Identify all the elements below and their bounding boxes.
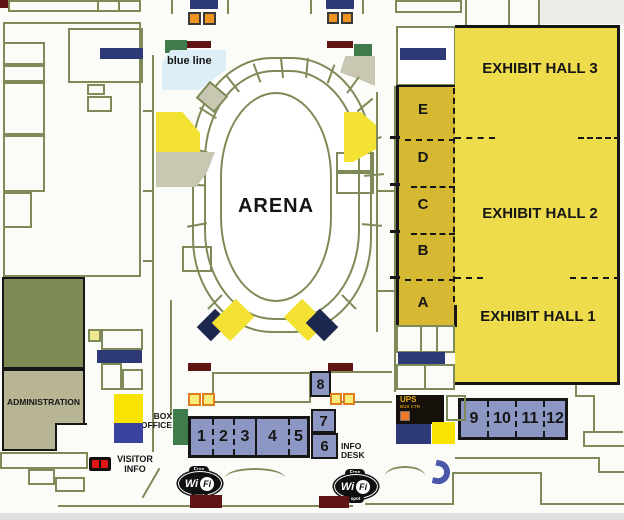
box-office-label: BOX OFFICE bbox=[140, 412, 172, 430]
promenade-wall bbox=[540, 503, 624, 505]
small-room bbox=[446, 395, 466, 421]
section-tick bbox=[390, 183, 400, 186]
arena-floor-oval: ARENA bbox=[220, 92, 332, 302]
ups-business-center: UPS BUS CTR bbox=[396, 395, 444, 424]
orange-block bbox=[203, 12, 216, 25]
wall-outline bbox=[8, 0, 141, 12]
blue-line-label: blue line bbox=[167, 56, 223, 68]
room-1: 1 bbox=[191, 419, 212, 455]
room-7-label: 7 bbox=[319, 413, 327, 430]
administration-upper-block bbox=[2, 277, 85, 369]
pale-yellow-block bbox=[88, 329, 101, 342]
navy-block bbox=[190, 0, 218, 9]
promenade-room bbox=[55, 477, 85, 492]
wifi-fi-label: Fi bbox=[199, 476, 215, 492]
yellow-square bbox=[202, 393, 215, 406]
promenade-room bbox=[0, 452, 88, 469]
yellow-block bbox=[114, 394, 143, 423]
room-2: 2 bbox=[214, 419, 233, 455]
section-tick bbox=[390, 136, 400, 139]
room-3: 3 bbox=[235, 419, 255, 455]
box-office-block bbox=[173, 409, 188, 445]
maroon-block bbox=[328, 363, 353, 371]
promenade-wall bbox=[540, 472, 542, 505]
hall-wall-segment bbox=[454, 305, 457, 327]
wifi-wi-label: Wi bbox=[185, 478, 198, 490]
corridor-wall bbox=[575, 395, 595, 397]
small-room bbox=[122, 369, 143, 390]
navy-block bbox=[326, 0, 354, 9]
wall-divider bbox=[420, 325, 422, 353]
promenade-wall bbox=[452, 472, 542, 474]
lobby-box bbox=[212, 372, 311, 403]
yellow-square bbox=[188, 393, 201, 406]
yellow-seating-block bbox=[156, 112, 200, 152]
wall-outline bbox=[395, 0, 462, 13]
navy-block bbox=[398, 352, 445, 364]
hall-divider-dashed bbox=[453, 88, 455, 302]
administration-label: ADMINISTRATION bbox=[7, 398, 85, 407]
concourse-room bbox=[182, 246, 212, 272]
promenade-room bbox=[28, 469, 55, 485]
room-8-label: 8 bbox=[317, 376, 325, 392]
corridor-wall bbox=[376, 92, 378, 332]
exhibit-hall-2-label: EXHIBIT HALL 2 bbox=[470, 206, 610, 222]
navy-block bbox=[97, 350, 142, 363]
navy-block bbox=[114, 423, 143, 443]
wall-tick bbox=[143, 190, 152, 192]
corridor-wall bbox=[583, 445, 624, 447]
room-6-label: 6 bbox=[320, 438, 328, 455]
arena-label: ARENA bbox=[238, 196, 314, 218]
corridor-wall bbox=[170, 300, 172, 415]
wifi-wi-label: Wi bbox=[341, 481, 354, 493]
west-room bbox=[3, 135, 45, 192]
wall-tick bbox=[538, 0, 540, 25]
wall-tick bbox=[376, 290, 394, 292]
exhibit-hall-3-label: EXHIBIT HALL 3 bbox=[470, 61, 610, 77]
maroon-block bbox=[319, 496, 349, 508]
strip-foot-room bbox=[396, 325, 455, 353]
room-10: 10 bbox=[489, 401, 515, 437]
rooms-1-5: 1 2 3 4 5 bbox=[188, 416, 310, 458]
wall-tick bbox=[465, 0, 467, 25]
west-room-small bbox=[87, 84, 105, 95]
hall-divider-dashed bbox=[570, 277, 620, 279]
navy-block bbox=[396, 424, 431, 444]
rooms-9-12: 9 10 11 12 bbox=[458, 398, 568, 440]
wall-tick bbox=[227, 0, 229, 14]
arena-floor-plan: blue line ARENA bbox=[0, 0, 624, 520]
yellow-square bbox=[330, 393, 342, 405]
wall-divider bbox=[424, 364, 426, 390]
hall-divider-dashed bbox=[455, 137, 495, 139]
wall-tick bbox=[376, 190, 394, 192]
wifi-fi-label: Fi bbox=[355, 479, 371, 495]
section-label: C bbox=[413, 197, 433, 213]
section-label: D bbox=[413, 150, 433, 166]
green-block bbox=[354, 44, 372, 56]
orange-block bbox=[341, 12, 353, 24]
corridor-wall bbox=[583, 431, 623, 433]
west-room bbox=[3, 42, 45, 65]
small-room bbox=[101, 329, 143, 350]
administration-block: ADMINISTRATION bbox=[2, 369, 85, 425]
red-square bbox=[101, 460, 108, 468]
corridor-wall bbox=[593, 395, 595, 433]
room-12: 12 bbox=[545, 401, 565, 437]
escalator-curve bbox=[432, 460, 453, 487]
promenade-wall bbox=[598, 471, 624, 473]
promenade-arc bbox=[225, 468, 285, 478]
box-office-line2: OFFICE bbox=[140, 421, 172, 430]
visitor-info-line2: INFO bbox=[112, 465, 158, 475]
section-divider bbox=[405, 279, 455, 281]
corridor-wall bbox=[152, 55, 154, 452]
section-strip: E D C B A bbox=[396, 85, 455, 325]
navy-block bbox=[400, 48, 446, 60]
administration-block-ext bbox=[2, 425, 57, 451]
red-square bbox=[92, 460, 99, 468]
wall-tick bbox=[508, 0, 510, 25]
maroon-block bbox=[187, 41, 211, 48]
wall-tick bbox=[171, 0, 173, 14]
room-5: 5 bbox=[290, 419, 307, 455]
scan-patch-top-right bbox=[540, 0, 624, 24]
section-label: B bbox=[413, 243, 433, 259]
wall-tick bbox=[310, 0, 312, 14]
section-divider bbox=[411, 186, 455, 188]
orange-block bbox=[188, 12, 201, 25]
section-divider bbox=[405, 139, 455, 141]
small-room bbox=[101, 363, 122, 390]
hall-divider-dashed bbox=[578, 137, 620, 139]
room-8: 8 bbox=[310, 371, 331, 397]
yellow-square bbox=[343, 393, 355, 405]
wall-tick bbox=[143, 110, 152, 112]
wall-segment bbox=[330, 371, 392, 373]
yellow-block bbox=[432, 422, 455, 444]
section-tick bbox=[390, 230, 400, 233]
promenade-wall bbox=[452, 472, 454, 505]
visitor-info-sign bbox=[89, 457, 111, 471]
promenade-wall bbox=[365, 503, 453, 505]
section-label: E bbox=[413, 102, 433, 118]
section-label: A bbox=[413, 295, 433, 311]
concourse-room bbox=[336, 172, 374, 194]
room-11: 11 bbox=[517, 401, 543, 437]
orange-block bbox=[327, 12, 339, 24]
maroon-block bbox=[327, 41, 353, 48]
wall-segment bbox=[55, 423, 87, 425]
room-7: 7 bbox=[311, 409, 336, 433]
section-tick bbox=[390, 276, 400, 279]
scan-patch-bottom bbox=[0, 513, 624, 520]
maroon-block bbox=[188, 363, 211, 371]
maroon-block bbox=[190, 495, 222, 508]
wall-divider bbox=[436, 325, 438, 353]
wifi-spot-label: spot bbox=[347, 495, 364, 503]
room-6: 6 bbox=[311, 433, 338, 459]
exhibit-hall-1-label: EXHIBIT HALL 1 bbox=[468, 309, 608, 325]
info-desk-label: INFO DESK bbox=[341, 442, 371, 460]
ups-orange-square bbox=[400, 411, 410, 421]
promenade-arc bbox=[385, 466, 425, 476]
wall-tick bbox=[143, 260, 152, 262]
room-4: 4 bbox=[257, 419, 288, 455]
wall-tick bbox=[362, 0, 364, 14]
wall-divider bbox=[97, 0, 99, 12]
hall-divider-dashed bbox=[455, 277, 483, 279]
wall-divider bbox=[118, 0, 120, 12]
promenade-wall bbox=[455, 457, 600, 459]
navy-block bbox=[100, 48, 143, 59]
ups-sub-label: BUS CTR bbox=[400, 405, 420, 410]
west-room-small bbox=[87, 96, 112, 112]
section-divider bbox=[411, 233, 455, 235]
west-room bbox=[3, 192, 32, 228]
west-room bbox=[3, 82, 45, 135]
west-room bbox=[3, 65, 45, 82]
visitor-info-label: VISITOR INFO bbox=[112, 455, 158, 474]
info-desk-line2: DESK bbox=[341, 451, 371, 460]
